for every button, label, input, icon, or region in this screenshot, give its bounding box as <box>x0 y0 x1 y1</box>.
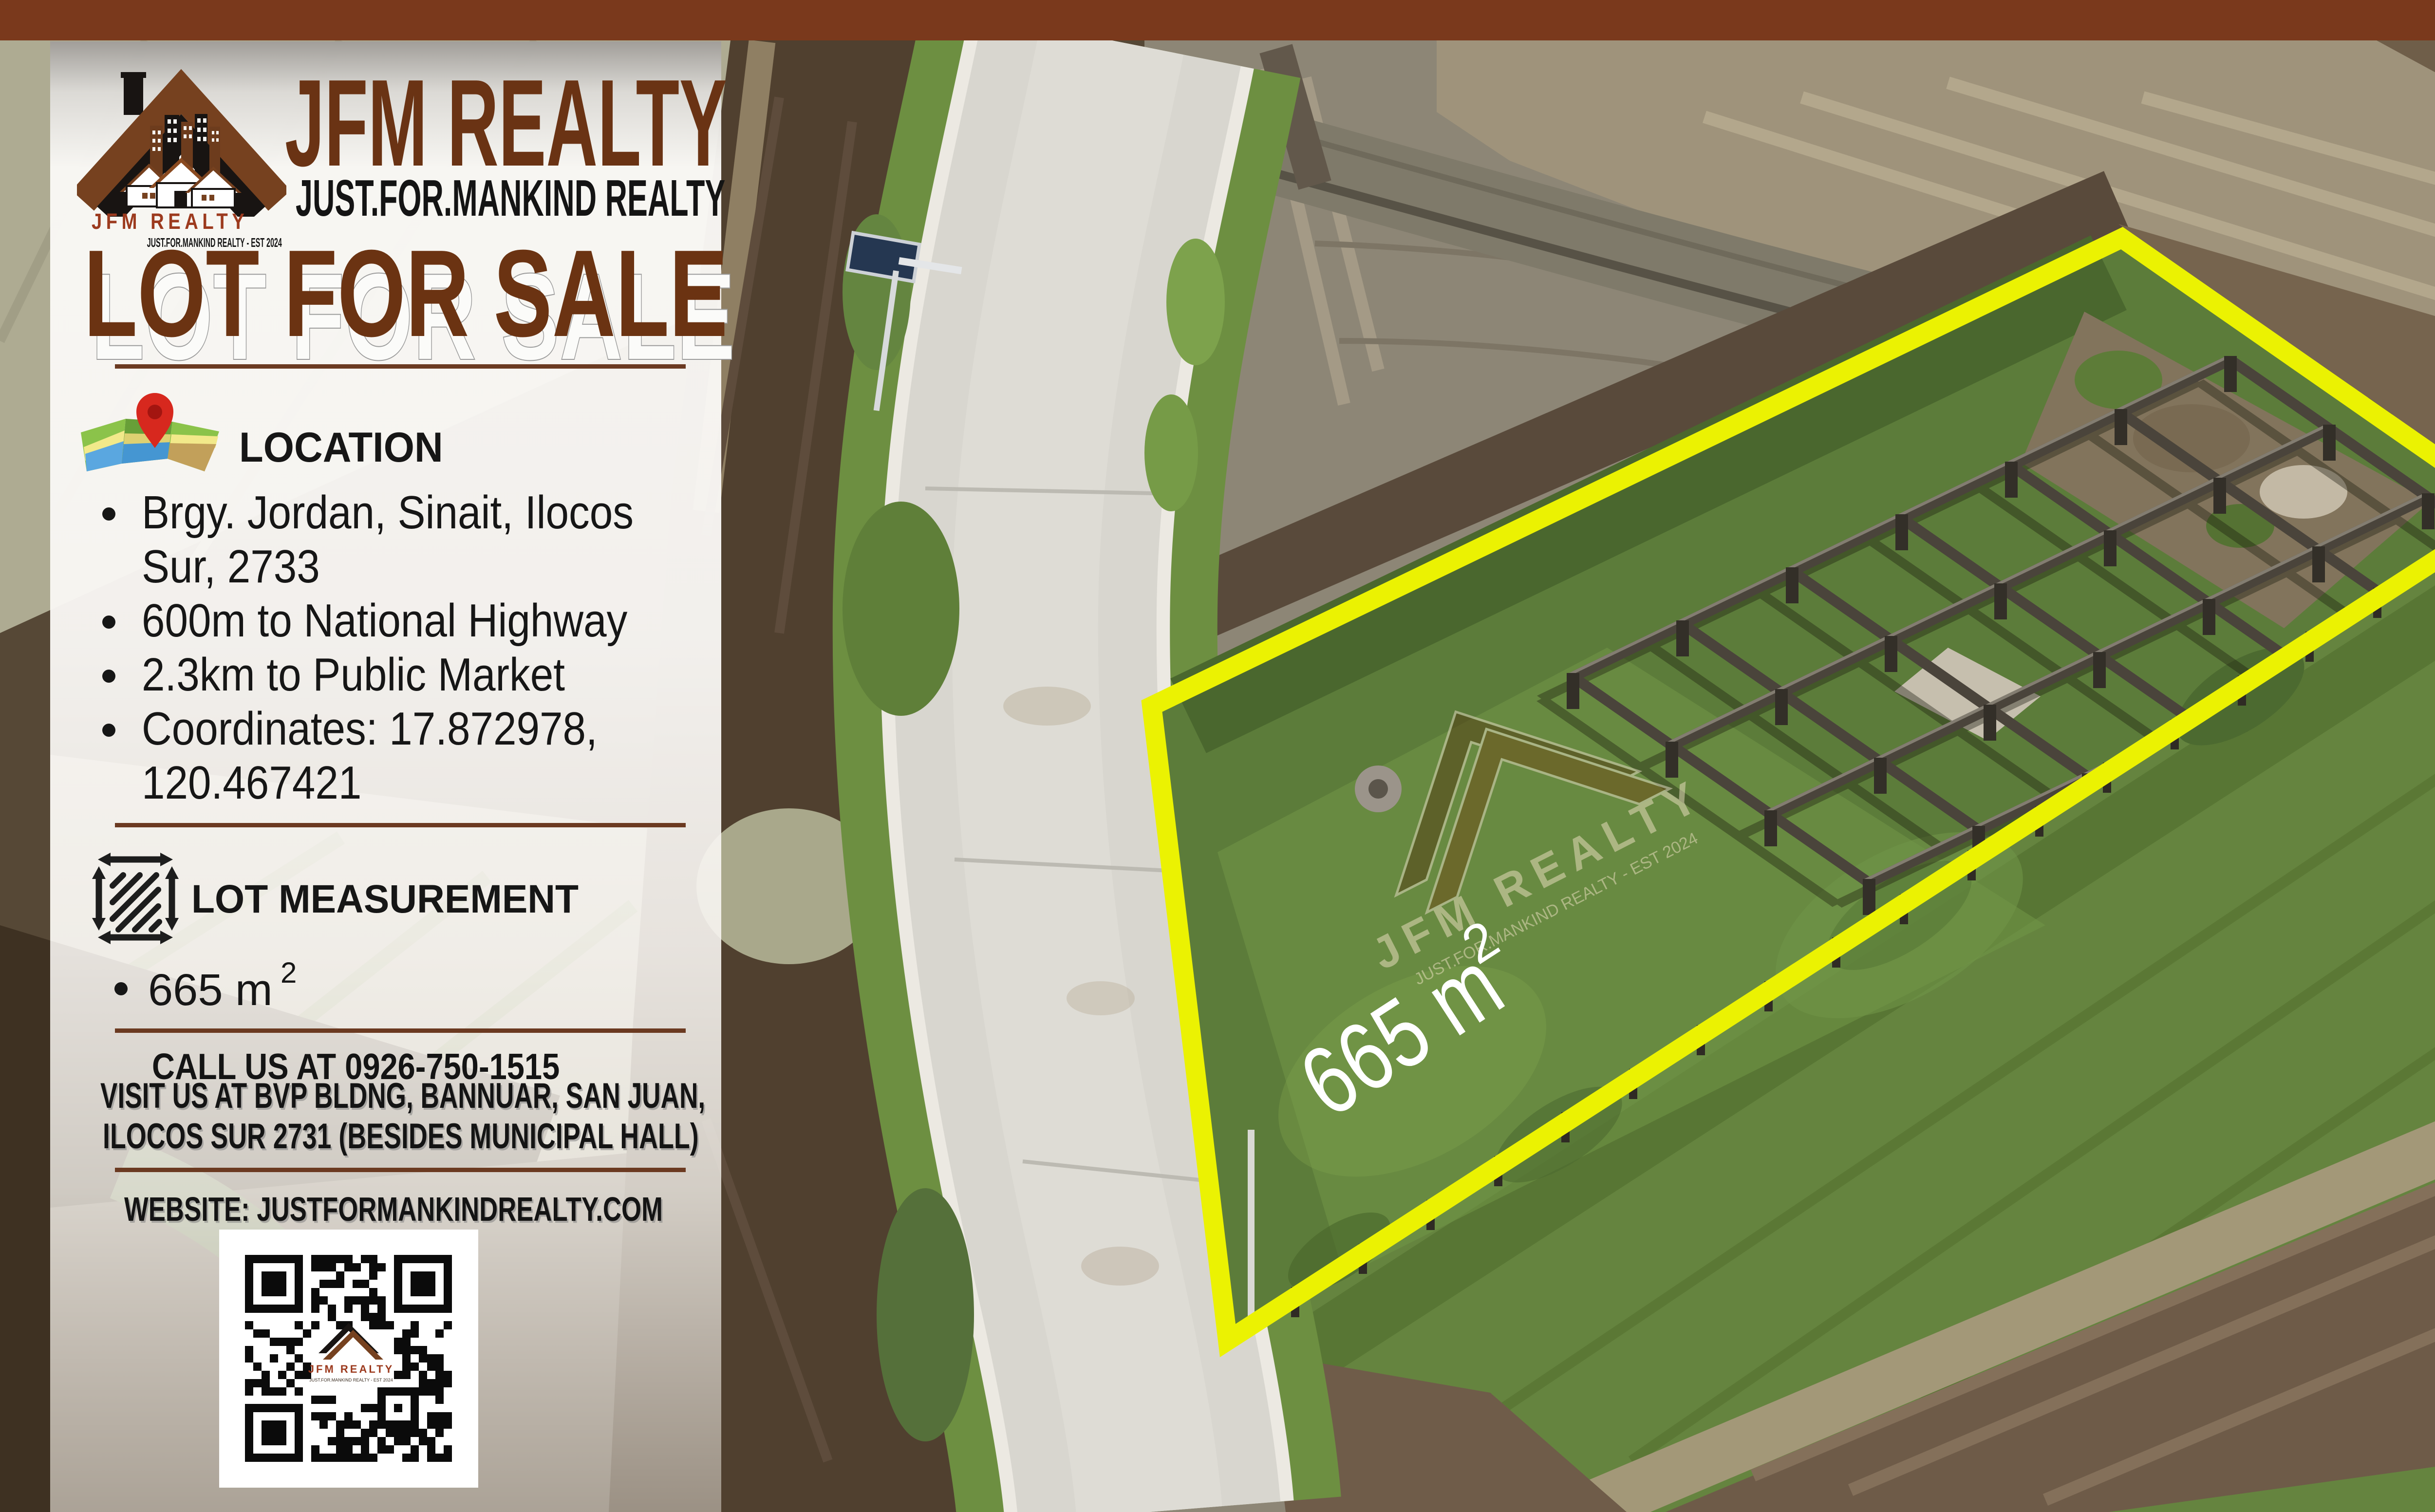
svg-text:JUST.FOR.MANKIND REALTY - EST: JUST.FOR.MANKIND REALTY - EST 2024 <box>309 1378 393 1382</box>
svg-text:JFM REALTY: JFM REALTY <box>308 1363 394 1375</box>
